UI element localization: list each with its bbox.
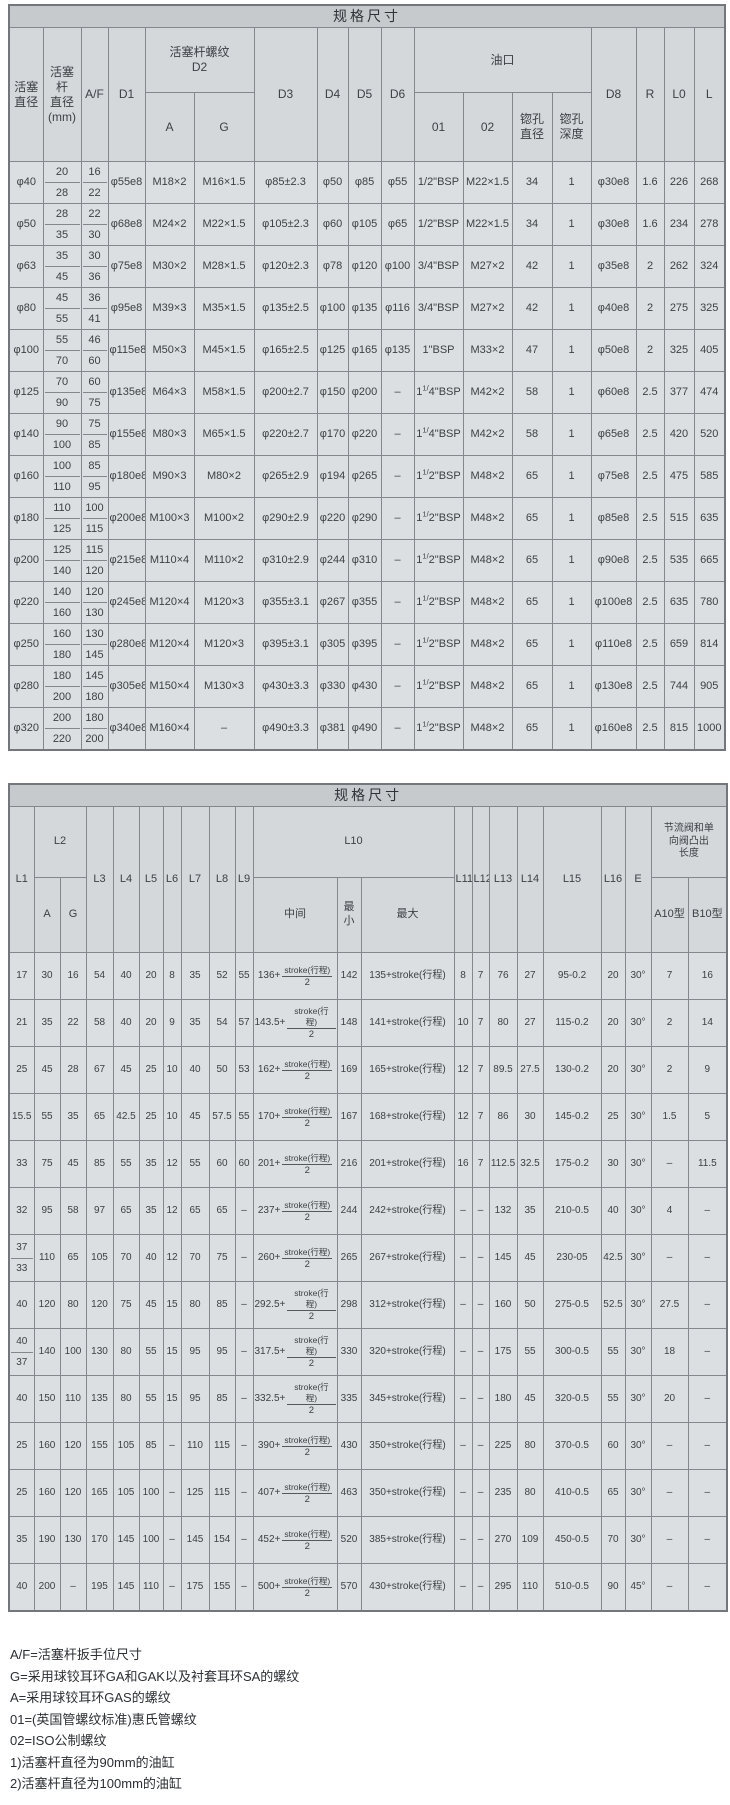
spec-cell: –	[454, 1423, 472, 1470]
spec-cell: –	[651, 1470, 688, 1517]
spec-cell: φ115e8	[108, 330, 145, 372]
spec-cell: M64×3	[145, 372, 194, 414]
spec-cell: 40	[113, 1000, 139, 1047]
col-header-l10-middle: 中间	[253, 878, 337, 953]
spec-cell: 90100	[43, 414, 81, 456]
spec-cell: 330	[337, 1329, 361, 1376]
spec-cell: 1	[552, 624, 591, 666]
spec-cell: 225	[489, 1423, 517, 1470]
spec-cell: –	[688, 1235, 727, 1282]
spec-cell: 35	[60, 1094, 86, 1141]
spec-cell: 2.5	[636, 666, 664, 708]
spec-cell: M90×3	[145, 456, 194, 498]
col-header-b10-type: B10型	[688, 878, 727, 953]
spec-cell: φ30e8	[591, 204, 636, 246]
stroke-formula: 390+stroke(行程)2	[258, 1435, 332, 1458]
spec-row-table1: φ280180200145180φ305e8M150×4M130×3φ430±3…	[9, 666, 725, 708]
spec-cell: 150	[34, 1376, 60, 1423]
col-header-d1: D1	[108, 28, 145, 162]
spec-cell: 65	[512, 708, 552, 751]
stacked-value: 100	[45, 456, 80, 477]
spec-cell: 15	[163, 1376, 181, 1423]
stacked-value: 75	[83, 414, 107, 435]
spec-cell: 11/2"BSP	[414, 666, 463, 708]
spec-cell: 45	[60, 1141, 86, 1188]
spec-cell: φ40e8	[591, 288, 636, 330]
stacked-value: 36	[83, 267, 107, 287]
stacked-value: 145	[83, 666, 107, 687]
spec-row-table1: φ220140160120130φ245e8M120×4M120×3φ355±3…	[9, 582, 725, 624]
spec-cell: 25	[9, 1470, 34, 1517]
spec-cell: 115	[209, 1423, 235, 1470]
spec-cell: M50×3	[145, 330, 194, 372]
spec-cell: φ100	[381, 246, 414, 288]
spec-cell: 12	[163, 1141, 181, 1188]
col-header-l2-g: G	[60, 878, 86, 953]
spec-cell: φ490	[348, 708, 381, 751]
spec-cell: 35	[517, 1188, 543, 1235]
stacked-value: 28	[45, 204, 80, 225]
stacked-value: 85	[83, 435, 107, 455]
spec-cell: –	[235, 1564, 253, 1612]
spec-cell: 160	[34, 1423, 60, 1470]
spec-cell: 8	[163, 953, 181, 1000]
stacked-value: 55	[45, 309, 80, 329]
spec-cell: 25	[9, 1047, 34, 1094]
spec-cell: 2.5	[636, 540, 664, 582]
spec-row-table1: φ180110125100115φ200e8M100×3M100×2φ290±2…	[9, 498, 725, 540]
spec-cell: 278	[694, 204, 725, 246]
stroke-formula: 170+stroke(行程)2	[258, 1106, 332, 1129]
table2-header-row-groups: L1 L2 L3 L4 L5 L6 L7 L8 L9 L10 L11 L12 L…	[9, 807, 727, 878]
spec-cell: φ60	[317, 204, 348, 246]
spec-cell: 110	[34, 1235, 60, 1282]
spec-cell: 132	[489, 1188, 517, 1235]
spec-cell: 11/2"BSP	[414, 456, 463, 498]
spec-cell: φ140	[9, 414, 43, 456]
spec-cell: 450-0.5	[543, 1517, 601, 1564]
spec-cell: 95	[34, 1188, 60, 1235]
spec-cell: M48×2	[463, 708, 512, 751]
spec-cell: 35	[181, 1000, 209, 1047]
stroke-formula: 237+stroke(行程)2	[258, 1200, 332, 1223]
spec-cell: 377	[664, 372, 694, 414]
spec-cell: 242+stroke(行程)	[361, 1188, 454, 1235]
spec-cell: φ50	[317, 162, 348, 204]
spec-cell: φ120	[348, 246, 381, 288]
stacked-value: 115	[83, 519, 107, 539]
col-header-l13: L13	[489, 807, 517, 953]
spec-row-table1: φ10055704660φ115e8M50×3M45×1.5φ165±2.5φ1…	[9, 330, 725, 372]
spec-cell: 1	[552, 498, 591, 540]
spec-cell: M110×2	[194, 540, 254, 582]
spec-cell: 168+stroke(行程)	[361, 1094, 454, 1141]
spec-cell: 475	[664, 456, 694, 498]
spec-cell: 30	[517, 1094, 543, 1141]
spec-cell: –	[235, 1235, 253, 1282]
spec-cell: 142	[337, 953, 361, 1000]
spec-cell: M80×2	[194, 456, 254, 498]
spec-cell: φ55	[381, 162, 414, 204]
stroke-formula: 292.5+stroke(行程)2	[255, 1288, 336, 1322]
spec-cell: M16×1.5	[194, 162, 254, 204]
spec-cell: 33	[9, 1141, 34, 1188]
spec-cell: 30°	[625, 1470, 651, 1517]
stacked-value: 125	[45, 540, 80, 561]
spec-cell: 30°	[625, 1094, 651, 1141]
spec-cell: –	[381, 582, 414, 624]
stacked-value: 220	[45, 729, 80, 749]
spec-cell: φ267	[317, 582, 348, 624]
spec-cell: 148	[337, 1000, 361, 1047]
spec-cell: –	[651, 1517, 688, 1564]
spec-cell: –	[472, 1235, 489, 1282]
spec-cell: 275	[664, 288, 694, 330]
spec-cell: φ95e8	[108, 288, 145, 330]
spec-cell: 85	[139, 1423, 163, 1470]
spec-cell: φ50e8	[591, 330, 636, 372]
spec-cell: 170	[86, 1517, 113, 1564]
spec-cell: –	[472, 1282, 489, 1329]
spec-cell: 190	[34, 1517, 60, 1564]
spec-cell: 90	[601, 1564, 625, 1612]
spec-cell: 65	[60, 1235, 86, 1282]
spec-cell: 317.5+stroke(行程)2	[253, 1329, 337, 1376]
spec-cell: 80	[113, 1329, 139, 1376]
spec-cell: φ90e8	[591, 540, 636, 582]
spec-cell: 11/2"BSP	[414, 498, 463, 540]
spec-cell: 20	[601, 1047, 625, 1094]
stacked-value: 125	[45, 519, 80, 539]
spec-cell: –	[381, 414, 414, 456]
spec-cell: 20	[601, 1000, 625, 1047]
spec-cell: 635	[694, 498, 725, 540]
spec-cell: 510-0.5	[543, 1564, 601, 1612]
spec-cell: 100	[60, 1329, 86, 1376]
stacked-value: 110	[45, 477, 80, 497]
spec-cell: M120×3	[194, 582, 254, 624]
stacked-value: 140	[45, 561, 80, 581]
stacked-value: 36	[83, 288, 107, 309]
spec-cell: 75	[209, 1235, 235, 1282]
spec-cell: 905	[694, 666, 725, 708]
spec-cell: 235	[489, 1470, 517, 1517]
spec-cell: 65	[512, 666, 552, 708]
stroke-formula: 201+stroke(行程)2	[258, 1153, 332, 1176]
spec-cell: φ75e8	[108, 246, 145, 288]
stroke-formula: 407+stroke(行程)2	[258, 1482, 332, 1505]
spec-cell: 55	[139, 1376, 163, 1423]
spec-cell: 30	[601, 1141, 625, 1188]
spec-cell: M22×1.5	[194, 204, 254, 246]
spec-cell: 11/2"BSP	[414, 624, 463, 666]
spec-cell: 1	[552, 162, 591, 204]
col-header-thread-g: G	[194, 93, 254, 162]
footnote-line: A/F=活塞杆扳手位尺寸	[10, 1644, 722, 1666]
spec-row-table1: φ320200220180200φ340e8M160×4–φ490±3.3φ38…	[9, 708, 725, 751]
spec-cell: 1000	[694, 708, 725, 751]
spec-cell: 35	[181, 953, 209, 1000]
col-header-l3: L3	[86, 807, 113, 953]
spec-cell: 57	[235, 1000, 253, 1047]
spec-cell: 7	[472, 1094, 489, 1141]
spec-cell: 15.5	[9, 1094, 34, 1141]
spec-cell: 2028	[43, 162, 81, 204]
spec-cell: M120×3	[194, 624, 254, 666]
spec-cell: 25	[139, 1047, 163, 1094]
col-header-l14: L14	[517, 807, 543, 953]
spec-cell: 136+stroke(行程)2	[253, 953, 337, 1000]
stacked-value: 55	[45, 330, 80, 351]
spec-cell: –	[381, 372, 414, 414]
spec-cell: φ215e8	[108, 540, 145, 582]
spec-cell: 30	[34, 953, 60, 1000]
spec-row-table2: 33754585553512556060201+stroke(行程)221620…	[9, 1141, 727, 1188]
spec-cell: φ280	[9, 666, 43, 708]
spec-cell: –	[454, 1329, 472, 1376]
spec-cell: φ220	[9, 582, 43, 624]
spec-cell: 4	[651, 1188, 688, 1235]
spec-cell: 55	[181, 1141, 209, 1188]
stacked-value: 60	[83, 372, 107, 393]
spec-cell: M130×3	[194, 666, 254, 708]
spec-cell: φ60e8	[591, 372, 636, 414]
spec-row-table2: 3733110651057040127075–260+stroke(行程)226…	[9, 1235, 727, 1282]
stroke-formula: 500+stroke(行程)2	[258, 1576, 332, 1599]
table1-title-row: 规格尺寸	[9, 5, 725, 28]
spec-cell: –	[163, 1470, 181, 1517]
spec-cell: 1622	[81, 162, 108, 204]
col-header-af: A/F	[81, 28, 108, 162]
stroke-formula: 332.5+stroke(行程)2	[255, 1382, 336, 1416]
spec-cell: 11/4"BSP	[414, 372, 463, 414]
col-header-e: E	[625, 807, 651, 953]
spec-cell: 160180	[43, 624, 81, 666]
spec-cell: M48×2	[463, 456, 512, 498]
spec-cell: 35	[34, 1000, 60, 1047]
spec-cell: M22×1.5	[463, 162, 512, 204]
spec-cell: M65×1.5	[194, 414, 254, 456]
spec-cell: 2.5	[636, 624, 664, 666]
spec-cell: 8595	[81, 456, 108, 498]
spec-cell: 1"BSP	[414, 330, 463, 372]
spec-cell: 175	[181, 1564, 209, 1612]
spec-cell: 320-0.5	[543, 1376, 601, 1423]
spec-cell: 2.5	[636, 456, 664, 498]
spec-cell: 145	[113, 1517, 139, 1564]
spec-cell: 40	[9, 1376, 34, 1423]
spec-cell: 474	[694, 372, 725, 414]
stacked-value: 130	[83, 624, 107, 645]
spec-cell: M110×4	[145, 540, 194, 582]
spec-cell: 5	[688, 1094, 727, 1141]
spec-cell: 7090	[43, 372, 81, 414]
spec-cell: 58	[512, 414, 552, 456]
stacked-value: 140	[45, 582, 80, 603]
spec-cell: M27×2	[463, 246, 512, 288]
col-header-l1: L1	[9, 807, 34, 953]
spec-cell: 201+stroke(行程)	[361, 1141, 454, 1188]
spec-cell: 154	[209, 1517, 235, 1564]
spec-cell: φ220	[348, 414, 381, 456]
spec-cell: φ68e8	[108, 204, 145, 246]
spec-cell: M100×2	[194, 498, 254, 540]
spec-cell: φ155e8	[108, 414, 145, 456]
col-header-l12: L12	[472, 807, 489, 953]
spec-cell: 1	[552, 414, 591, 456]
spec-cell: 65	[113, 1188, 139, 1235]
spec-cell: 12	[454, 1094, 472, 1141]
spec-cell: 332.5+stroke(行程)2	[253, 1376, 337, 1423]
spec-cell: –	[651, 1423, 688, 1470]
spec-cell: 80	[517, 1423, 543, 1470]
spec-cell: 30°	[625, 1188, 651, 1235]
spec-cell: M48×2	[463, 582, 512, 624]
spec-cell: 112.5	[489, 1141, 517, 1188]
spec-cell: M28×1.5	[194, 246, 254, 288]
spec-cell: –	[163, 1564, 181, 1612]
stroke-formula: 143.5+stroke(行程)2	[255, 1006, 336, 1040]
spec-cell: 140160	[43, 582, 81, 624]
spec-cell: φ290±2.9	[254, 498, 317, 540]
spec-cell: –	[60, 1564, 86, 1612]
spec-cell: 40	[139, 1235, 163, 1282]
spec-cell: M150×4	[145, 666, 194, 708]
spec-cell: –	[454, 1470, 472, 1517]
stacked-value: 145	[83, 645, 107, 665]
spec-cell: 20	[651, 1376, 688, 1423]
stacked-value: 200	[45, 687, 80, 707]
spec-cell: 67	[86, 1047, 113, 1094]
spec-cell: 350+stroke(行程)	[361, 1470, 454, 1517]
spec-cell: φ160	[9, 456, 43, 498]
stacked-value: 40	[11, 1332, 33, 1353]
spec-cell: –	[454, 1188, 472, 1235]
spec-cell: 100110	[43, 456, 81, 498]
stacked-value: 30	[83, 225, 107, 245]
spec-cell: M48×2	[463, 540, 512, 582]
spec-cell: 30°	[625, 1423, 651, 1470]
spec-cell: φ125	[317, 330, 348, 372]
spec-cell: 110125	[43, 498, 81, 540]
spec-cell: 57.5	[209, 1094, 235, 1141]
col-header-counterbore-diameter: 锪孔 直径	[512, 93, 552, 162]
spec-cell: 145180	[81, 666, 108, 708]
spec-cell: φ135	[348, 288, 381, 330]
spec-cell: M48×2	[463, 666, 512, 708]
spec-row-table2: 2516012015510585–110115–390+stroke(行程)24…	[9, 1423, 727, 1470]
spec-row-table2: 15.555356542.525104557.555170+stroke(行程)…	[9, 1094, 727, 1141]
spec-cell: 2.5	[636, 708, 664, 751]
spec-cell: φ160e8	[591, 708, 636, 751]
spec-cell: 3641	[81, 288, 108, 330]
spec-cell: 32	[9, 1188, 34, 1235]
spec-row-table2: 40120801207545158085–292.5+stroke(行程)229…	[9, 1282, 727, 1329]
spec-cell: 180200	[81, 708, 108, 751]
spec-cell: 10	[163, 1094, 181, 1141]
spec-cell: 167	[337, 1094, 361, 1141]
spec-table-dimensions-2: 规格尺寸 L1 L2 L3 L4 L5 L6 L7 L8 L9 L10 L11 …	[8, 783, 728, 1612]
col-header-l16: L16	[601, 807, 625, 953]
stacked-value: 60	[83, 351, 107, 371]
spec-cell: φ305e8	[108, 666, 145, 708]
spec-cell: 268	[694, 162, 725, 204]
footnote-line: 1)活塞杆直径为90mm的油缸	[10, 1752, 722, 1774]
spec-cell: φ135e8	[108, 372, 145, 414]
spec-cell: 85	[209, 1376, 235, 1423]
spec-cell: 635	[664, 582, 694, 624]
spec-cell: 135	[86, 1376, 113, 1423]
spec-cell: 15	[163, 1282, 181, 1329]
col-header-l10-min: 最小	[337, 878, 361, 953]
col-group-rod-thread-d2: 活塞杆螺纹 D2	[145, 28, 254, 93]
spec-cell: φ305	[317, 624, 348, 666]
spec-cell: 70	[113, 1235, 139, 1282]
spec-cell: 260+stroke(行程)2	[253, 1235, 337, 1282]
spec-cell: 58	[60, 1188, 86, 1235]
spec-cell: 535	[664, 540, 694, 582]
spec-cell: φ170	[317, 414, 348, 456]
stacked-value: 70	[45, 372, 80, 393]
spec-cell: 814	[694, 624, 725, 666]
spec-cell: 110	[517, 1564, 543, 1612]
spec-cell: 4660	[81, 330, 108, 372]
spec-cell: 25	[9, 1423, 34, 1470]
spec-cell: 30°	[625, 1235, 651, 1282]
col-header-l10-max: 最大	[361, 878, 454, 953]
spec-row-table2: 35190130170145100–145154–452+stroke(行程)2…	[9, 1517, 727, 1564]
spec-cell: φ75e8	[591, 456, 636, 498]
spec-cell: –	[381, 540, 414, 582]
stacked-value: 100	[83, 498, 107, 519]
spec-row-table2: 1730165440208355255136+stroke(行程)2142135…	[9, 953, 727, 1000]
spec-cell: M48×2	[463, 498, 512, 540]
spec-cell: 350+stroke(行程)	[361, 1423, 454, 1470]
col-header-counterbore-depth: 锪孔 深度	[552, 93, 591, 162]
spec-cell: 55	[34, 1094, 60, 1141]
spec-cell: 120	[60, 1470, 86, 1517]
spec-cell: M42×2	[463, 414, 512, 456]
spec-cell: 405	[694, 330, 725, 372]
stacked-value: 180	[83, 687, 107, 707]
spec-cell: 32.5	[517, 1141, 543, 1188]
spec-cell: φ330	[317, 666, 348, 708]
spec-cell: 100	[139, 1517, 163, 1564]
spec-cell: 130	[86, 1329, 113, 1376]
spec-cell: 30°	[625, 1000, 651, 1047]
stacked-value: 90	[45, 414, 80, 435]
spec-cell: –	[472, 1423, 489, 1470]
stacked-value: 160	[45, 603, 80, 623]
spec-cell: 324	[694, 246, 725, 288]
spec-cell: –	[235, 1423, 253, 1470]
spec-cell: 60	[601, 1423, 625, 1470]
spec-cell: 2.5	[636, 498, 664, 540]
spec-cell: φ110e8	[591, 624, 636, 666]
spec-cell: –	[235, 1470, 253, 1517]
spec-row-table1: φ8045553641φ95e8M39×3M35×1.5φ135±2.5φ100…	[9, 288, 725, 330]
spec-cell: –	[651, 1564, 688, 1612]
spec-cell: 47	[512, 330, 552, 372]
spec-cell: 1.6	[636, 162, 664, 204]
spec-cell: –	[235, 1282, 253, 1329]
spec-cell: 292.5+stroke(行程)2	[253, 1282, 337, 1329]
spec-cell: 175	[489, 1329, 517, 1376]
col-header-l4: L4	[113, 807, 139, 953]
spec-cell: 28	[60, 1047, 86, 1094]
spec-cell: 45	[517, 1235, 543, 1282]
spec-cell: M120×4	[145, 624, 194, 666]
